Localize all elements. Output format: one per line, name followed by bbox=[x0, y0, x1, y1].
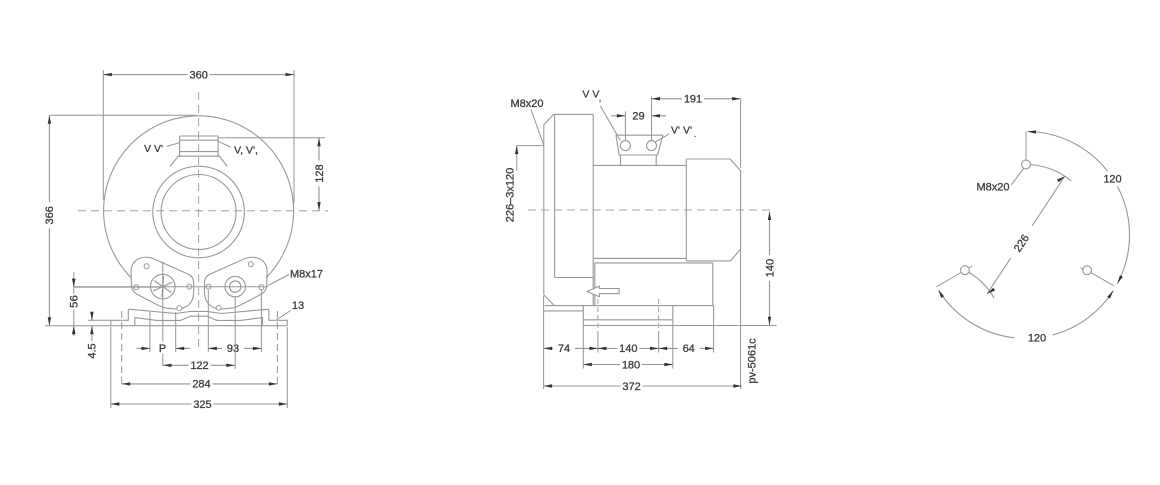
svg-text:.: . bbox=[694, 129, 697, 139]
svg-text:V V': V V' bbox=[144, 143, 163, 155]
svg-text:140: 140 bbox=[619, 343, 637, 355]
svg-text:140: 140 bbox=[764, 259, 776, 277]
svg-text:64: 64 bbox=[683, 343, 695, 355]
svg-text:120: 120 bbox=[1103, 173, 1121, 185]
svg-text:29: 29 bbox=[632, 111, 644, 123]
svg-text:284: 284 bbox=[192, 379, 210, 391]
svg-text:372: 372 bbox=[622, 381, 640, 393]
svg-text:366: 366 bbox=[44, 206, 56, 224]
svg-text:56: 56 bbox=[69, 295, 81, 308]
svg-text:122: 122 bbox=[190, 360, 208, 372]
svg-text:226–3x120: 226–3x120 bbox=[505, 168, 517, 222]
svg-text:180: 180 bbox=[622, 359, 640, 371]
svg-text:M8x20: M8x20 bbox=[976, 182, 1009, 194]
svg-text:325: 325 bbox=[193, 399, 211, 411]
svg-text:M8x20: M8x20 bbox=[510, 98, 543, 110]
svg-text:93: 93 bbox=[227, 343, 239, 355]
svg-text:V' V': V' V' bbox=[671, 125, 692, 137]
svg-text:191: 191 bbox=[684, 94, 702, 106]
svg-text:V, V',: V, V', bbox=[234, 145, 258, 157]
svg-text:74: 74 bbox=[558, 343, 570, 355]
svg-text:M8x17: M8x17 bbox=[290, 269, 323, 281]
svg-text:13: 13 bbox=[292, 300, 304, 312]
svg-text:4.5: 4.5 bbox=[87, 343, 99, 358]
svg-text:360: 360 bbox=[190, 69, 208, 81]
svg-text:226: 226 bbox=[1012, 233, 1032, 255]
svg-text:120: 120 bbox=[1028, 333, 1046, 345]
svg-text:,: , bbox=[599, 93, 602, 103]
svg-text:128: 128 bbox=[314, 164, 326, 182]
svg-text:pv-5061c: pv-5061c bbox=[747, 338, 759, 384]
svg-text:V V: V V bbox=[582, 89, 599, 101]
svg-text:P: P bbox=[159, 343, 166, 355]
